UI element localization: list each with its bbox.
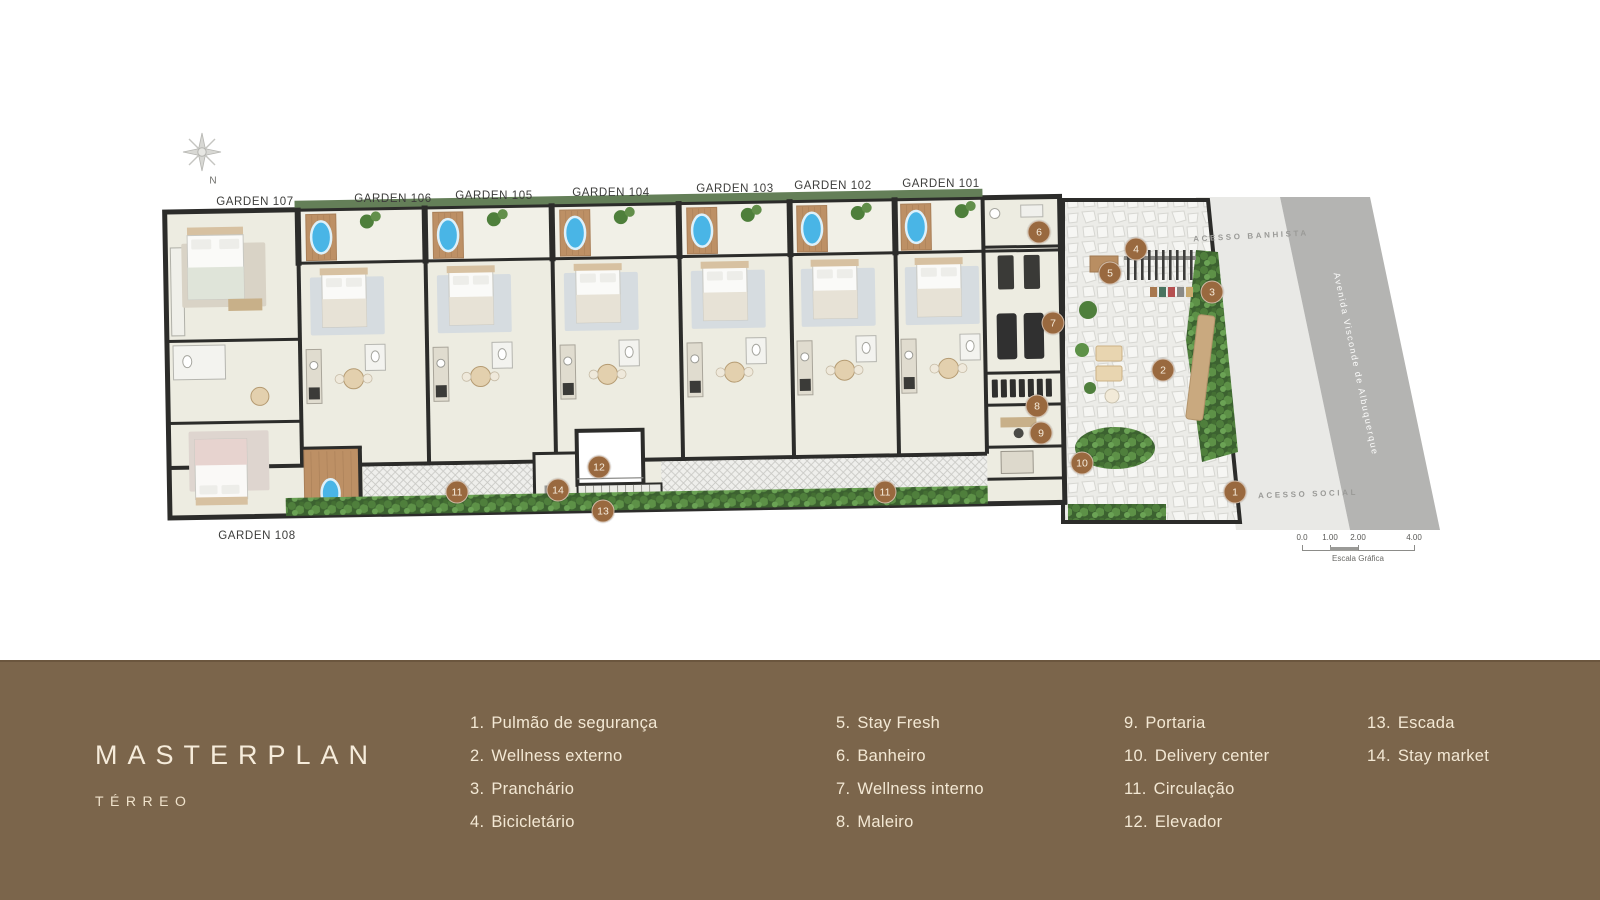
marker-2-wellness-externo: 2 <box>1152 359 1175 382</box>
marker-13-escada: 13 <box>592 500 615 523</box>
garden-105-label: GARDEN 105 <box>455 190 533 202</box>
legend-item-3: 3.Pranchário <box>470 780 658 799</box>
legend-column-2: 5.Stay Fresh 6.Banheiro 7.Wellness inter… <box>836 714 984 846</box>
marker-12-elevador: 12 <box>588 456 611 479</box>
marker-11-circulacao-right: 11 <box>874 481 897 504</box>
garden-106-label: GARDEN 106 <box>354 193 432 205</box>
building <box>165 187 1065 518</box>
marker-10-delivery: 10 <box>1071 452 1094 475</box>
garden-108-label: GARDEN 108 <box>218 530 296 542</box>
compass-north-label: N <box>209 176 216 187</box>
scale-bar <box>1302 545 1414 551</box>
marker-11-circulacao-left: 11 <box>446 481 469 504</box>
legend-column-1: 1.Pulmão de segurança 2.Wellness externo… <box>470 714 658 846</box>
marker-5-stay-fresh: 5 <box>1099 262 1122 285</box>
marker-9-portaria: 9 <box>1030 422 1053 445</box>
legend-column-3: 9.Portaria 10.Delivery center 11.Circula… <box>1124 714 1269 846</box>
legend-footer: MASTERPLAN TÉRREO 1.Pulmão de segurança … <box>0 660 1600 900</box>
page-title: MASTERPLAN <box>95 740 378 771</box>
legend-item-8: 8.Maleiro <box>836 813 984 832</box>
graphic-scale: 0.0 1.00 2.00 4.00 Escala Gráfica <box>1302 533 1414 563</box>
legend-item-1: 1.Pulmão de segurança <box>470 714 658 733</box>
marker-7-wellness-interno: 7 <box>1042 312 1065 335</box>
legend-item-10: 10.Delivery center <box>1124 747 1269 766</box>
legend-column-4: 13.Escada 14.Stay market <box>1367 714 1489 780</box>
masterplan-page: N GARDEN 107 GARDEN 106 GARDEN 105 GARDE… <box>0 0 1600 900</box>
marker-3-pranchario: 3 <box>1201 281 1224 304</box>
legend-item-6: 6.Banheiro <box>836 747 984 766</box>
outdoor-wellness-area <box>1063 200 1240 522</box>
scale-caption: Escala Gráfica <box>1302 554 1414 563</box>
garden-101-label: GARDEN 101 <box>902 178 980 190</box>
legend-item-2: 2.Wellness externo <box>470 747 658 766</box>
page-subtitle: TÉRREO <box>95 793 378 809</box>
marker-4-bicicletario: 4 <box>1125 238 1148 261</box>
marker-14-stay-market: 14 <box>547 479 570 502</box>
marker-1-pulmao: 1 <box>1224 481 1247 504</box>
legend-item-11: 11.Circulação <box>1124 780 1269 799</box>
marker-6-banheiro: 6 <box>1028 221 1051 244</box>
garden-107-label: GARDEN 107 <box>216 196 294 208</box>
legend-item-13: 13.Escada <box>1367 714 1489 733</box>
scale-tick-labels: 0.0 1.00 2.00 4.00 <box>1302 533 1414 544</box>
legend-item-14: 14.Stay market <box>1367 747 1489 766</box>
legend-item-7: 7.Wellness interno <box>836 780 984 799</box>
marker-8-maleiro: 8 <box>1026 395 1049 418</box>
elevator-shaft <box>577 430 644 485</box>
garden-103-label: GARDEN 103 <box>696 183 774 195</box>
garden-102-label: GARDEN 102 <box>794 180 872 192</box>
legend-item-9: 9.Portaria <box>1124 714 1269 733</box>
legend-item-4: 4.Bicicletário <box>470 813 658 832</box>
legend-item-12: 12.Elevador <box>1124 813 1269 832</box>
legend-item-5: 5.Stay Fresh <box>836 714 984 733</box>
garden-104-label: GARDEN 104 <box>572 187 650 199</box>
brand-block: MASTERPLAN TÉRREO <box>95 740 378 809</box>
compass-icon <box>183 133 221 171</box>
